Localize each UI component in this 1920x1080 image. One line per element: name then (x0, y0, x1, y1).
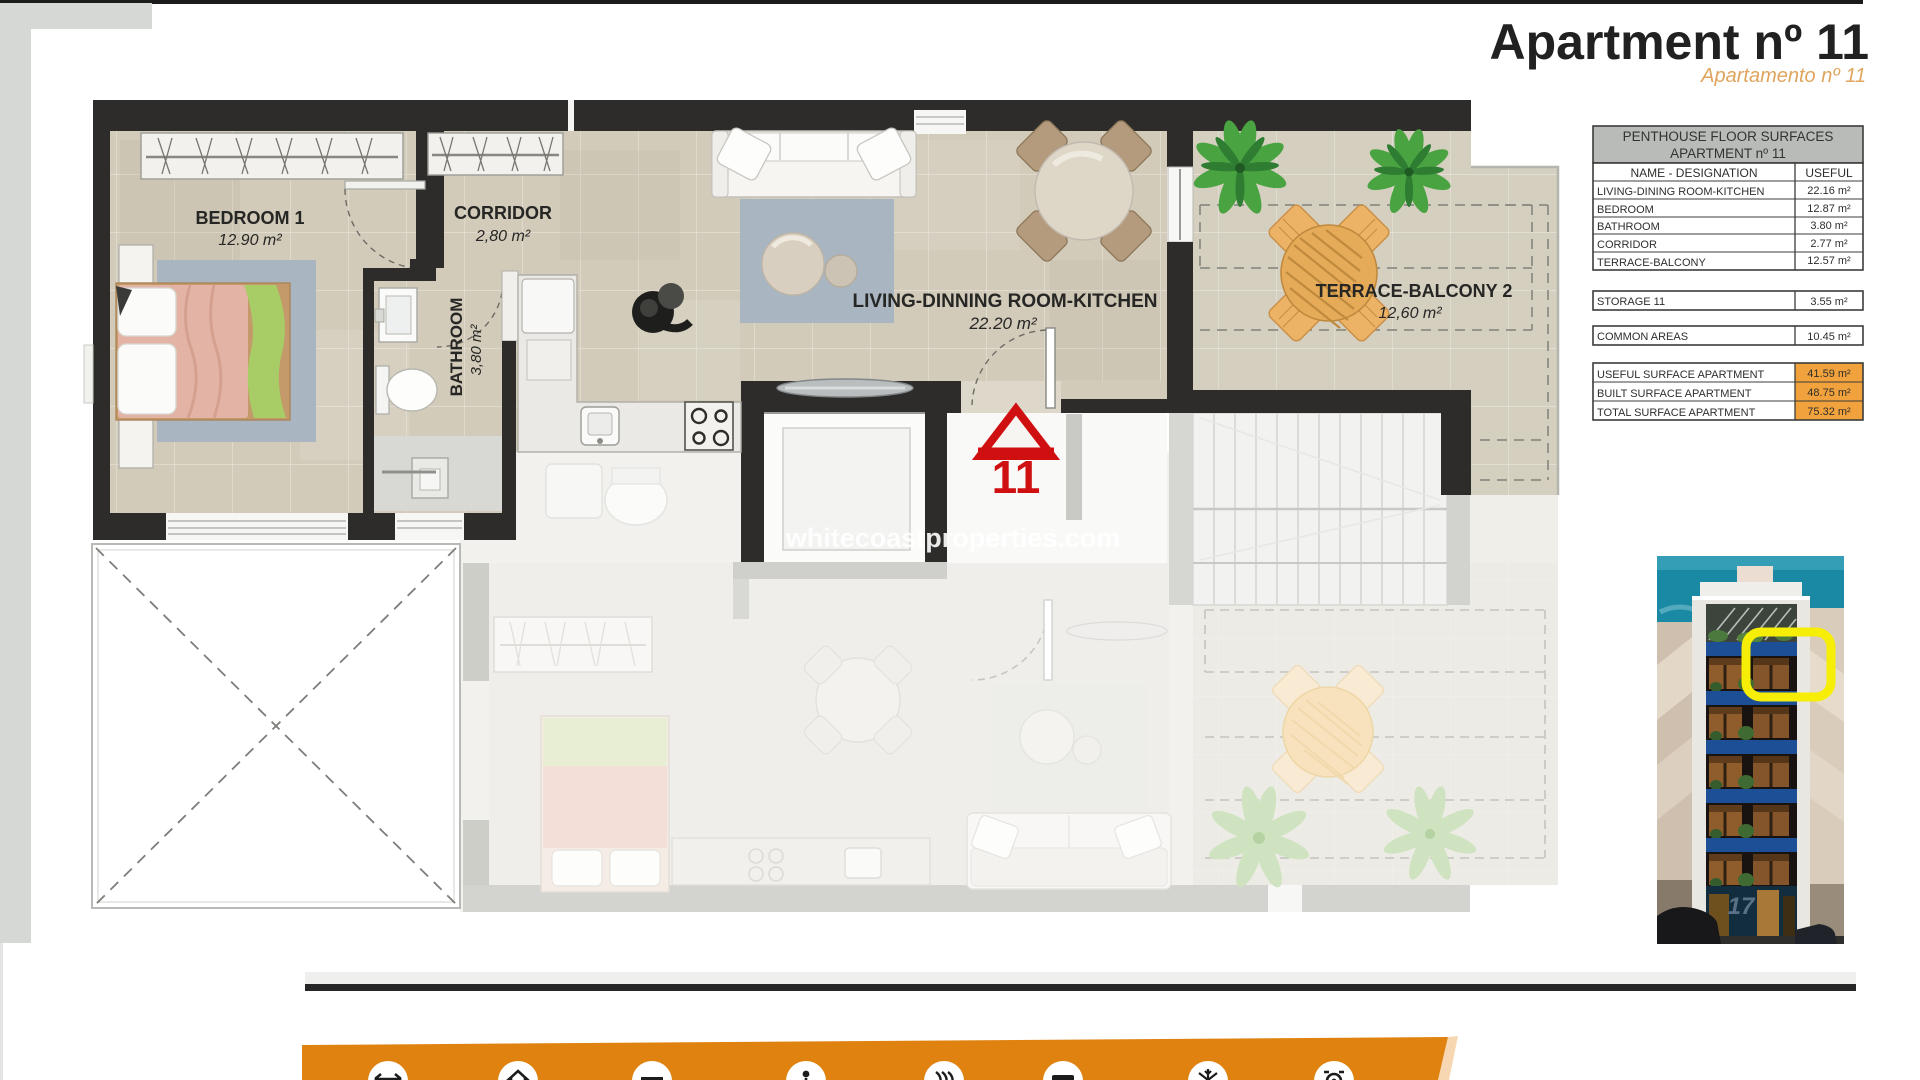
svg-text:48.75 m²: 48.75 m² (1807, 387, 1851, 399)
svg-text:BATHROOM: BATHROOM (447, 298, 466, 397)
svg-text:PENTHOUSE FLOOR SURFACES: PENTHOUSE FLOOR SURFACES (1623, 129, 1834, 144)
svg-text:75.32 m²: 75.32 m² (1807, 406, 1851, 418)
svg-text:CORRIDOR: CORRIDOR (454, 203, 552, 223)
svg-text:CORRIDOR: CORRIDOR (1597, 239, 1657, 251)
svg-text:COMMON AREAS: COMMON AREAS (1597, 331, 1688, 343)
svg-text:41.59 m²: 41.59 m² (1807, 368, 1851, 380)
svg-text:Apartamento nº 11: Apartamento nº 11 (1700, 65, 1866, 87)
svg-text:Apartment nº 11: Apartment nº 11 (1490, 14, 1869, 70)
svg-text:USEFUL: USEFUL (1805, 166, 1853, 180)
svg-text:12,60 m²: 12,60 m² (1378, 305, 1442, 322)
svg-text:22.20 m²: 22.20 m² (968, 314, 1037, 333)
svg-text:11: 11 (992, 451, 1041, 503)
svg-text:TOTAL SURFACE APARTMENT: TOTAL SURFACE APARTMENT (1597, 407, 1756, 419)
svg-text:10.45 m²: 10.45 m² (1807, 331, 1851, 343)
svg-text:whitecoastproperties.com: whitecoastproperties.com (785, 523, 1121, 553)
svg-text:APARTMENT nº 11: APARTMENT nº 11 (1670, 146, 1786, 161)
svg-text:22.16 m²: 22.16 m² (1807, 185, 1851, 197)
svg-text:BEDROOM: BEDROOM (1597, 204, 1654, 216)
svg-text:BUILT SURFACE APARTMENT: BUILT SURFACE APARTMENT (1597, 388, 1752, 400)
svg-text:NAME - DESIGNATION: NAME - DESIGNATION (1630, 166, 1757, 180)
svg-text:12.57 m²: 12.57 m² (1807, 255, 1851, 267)
svg-text:3.80 m²: 3.80 m² (1810, 220, 1848, 232)
svg-text:BEDROOM 1: BEDROOM 1 (195, 208, 304, 228)
svg-text:12.90 m²: 12.90 m² (218, 232, 282, 249)
svg-text:TERRACE-BALCONY 2: TERRACE-BALCONY 2 (1316, 281, 1513, 301)
svg-text:2,80 m²: 2,80 m² (475, 228, 531, 245)
svg-text:3.55 m²: 3.55 m² (1810, 296, 1848, 308)
svg-text:STORAGE 11: STORAGE 11 (1597, 296, 1665, 308)
svg-text:BATHROOM: BATHROOM (1597, 221, 1660, 233)
svg-text:3,80 m²: 3,80 m² (468, 324, 485, 376)
svg-text:LIVING-DINING ROOM-KITCHEN: LIVING-DINING ROOM-KITCHEN (1597, 186, 1765, 198)
svg-text:LIVING-DINNING ROOM-KITCHEN: LIVING-DINNING ROOM-KITCHEN (852, 291, 1157, 312)
svg-text:12.87 m²: 12.87 m² (1807, 203, 1851, 215)
svg-text:TERRACE-BALCONY: TERRACE-BALCONY (1597, 257, 1706, 269)
svg-text:2.77 m²: 2.77 m² (1810, 238, 1848, 250)
svg-text:17: 17 (1728, 893, 1756, 920)
svg-text:USEFUL SURFACE APARTMENT: USEFUL SURFACE APARTMENT (1597, 369, 1765, 381)
